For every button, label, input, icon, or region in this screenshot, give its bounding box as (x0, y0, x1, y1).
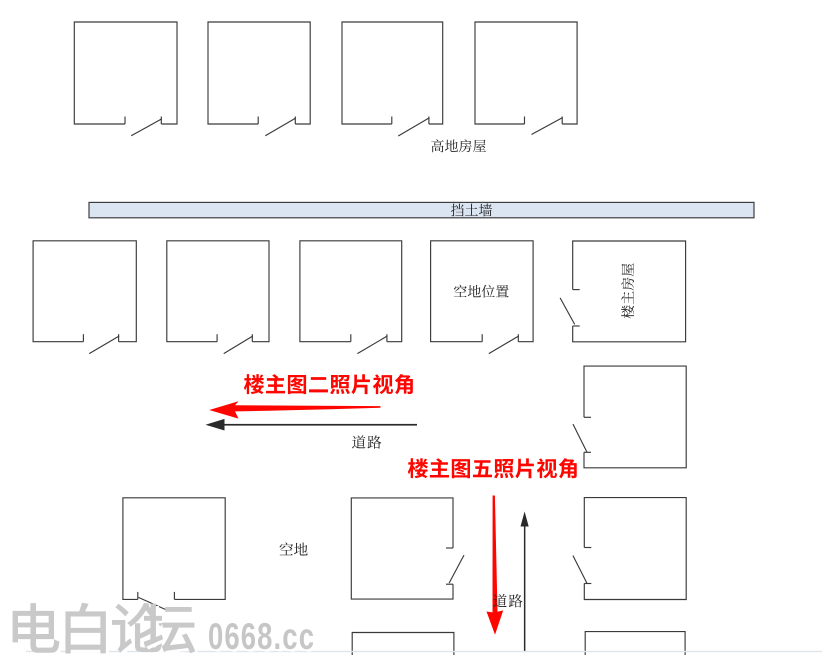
svg-text:0668.cc: 0668.cc (208, 616, 315, 655)
